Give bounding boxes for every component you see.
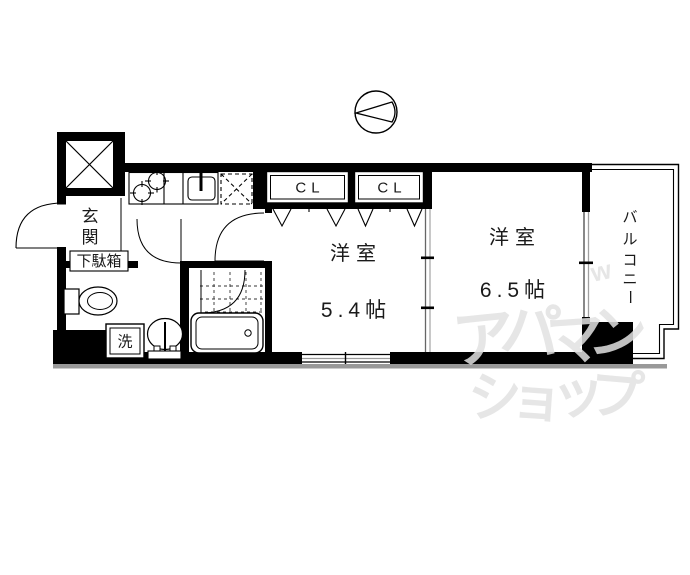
svg-text:ー: ー	[621, 289, 638, 304]
kitchen-counter	[129, 170, 218, 206]
entrance-opening	[57, 204, 66, 248]
floorplan-image: 玄 関 下駄箱 洗 CL CL 洋室 5.4帖 洋室 6.5帖 バ ル コ ニ …	[0, 0, 690, 575]
room-partition	[421, 209, 434, 352]
room1-window	[302, 352, 390, 364]
shoe-box-label: 下駄箱	[76, 253, 121, 270]
balcony-window	[579, 212, 593, 317]
bathroom-door	[201, 270, 245, 313]
stove-icon	[130, 170, 169, 206]
sink-icon	[188, 172, 215, 200]
refrigerator-space	[221, 174, 252, 204]
svg-text:バ: バ	[622, 209, 637, 226]
closet1-label: CL	[295, 180, 324, 197]
balcony-label: バ ル コ ニ ー	[621, 209, 638, 305]
room1-size-label: 5.4帖	[321, 299, 391, 322]
north-arrow-icon	[355, 91, 397, 133]
room2-size-label: 6.5帖	[480, 279, 550, 302]
floor-plan: 玄 関 下駄箱 洗 CL CL 洋室 5.4帖 洋室 6.5帖 バ ル コ ニ …	[0, 0, 690, 575]
bathroom	[191, 270, 263, 353]
toilet-icon	[64, 287, 117, 315]
pipe-shaft	[66, 141, 113, 188]
washroom-door	[137, 219, 181, 263]
entrance-label-char2: 関	[82, 228, 99, 247]
tile-floor	[200, 272, 263, 312]
svg-text:ニ: ニ	[622, 271, 637, 288]
vanity-sink-icon	[148, 319, 183, 360]
room1-door	[215, 213, 264, 261]
entrance-label-char1: 玄	[82, 207, 99, 226]
room2-type-label: 洋室	[489, 226, 541, 249]
building-shadow	[53, 364, 667, 369]
laundry-label: 洗	[117, 334, 132, 351]
room1-type-label: 洋室	[330, 242, 382, 265]
closet2-label: CL	[377, 180, 406, 197]
svg-text:コ: コ	[622, 252, 637, 269]
entrance-door	[16, 203, 63, 248]
shoe-box: 下駄箱	[70, 251, 128, 271]
bathtub-icon	[191, 313, 263, 353]
svg-text:ル: ル	[622, 231, 637, 248]
